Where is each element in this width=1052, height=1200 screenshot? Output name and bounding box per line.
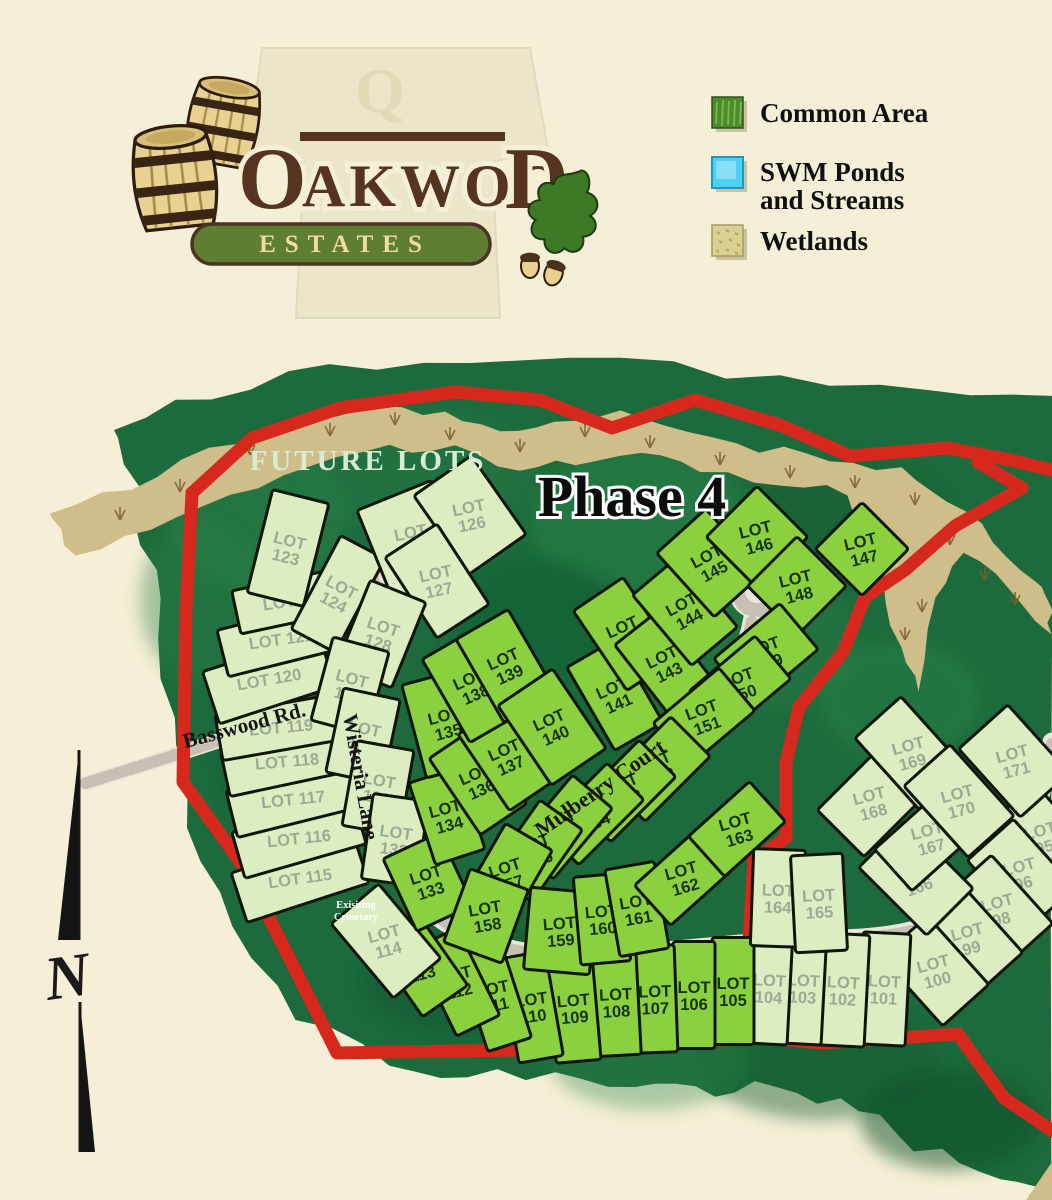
logo: Q O AKWOO D ESTATES [129, 48, 615, 318]
legend: Common Area SWM Ponds and Streams Wetlan… [712, 97, 929, 260]
phase-4-title: Phase 4 [538, 464, 727, 529]
legend-swm-label-line2: and Streams [760, 185, 904, 215]
future-lots-label: FUTURE LOTS [250, 445, 487, 477]
cemetery-label-line2: Cemetary [334, 912, 379, 923]
plat-map: LOT95LOT96LOT98LOT99LOT100LOT101LOT102LO… [0, 0, 1052, 1200]
svg-text:LOT104: LOT104 [752, 971, 787, 1008]
north-arrow: N [39, 750, 96, 1152]
logo-overline [300, 132, 505, 141]
lot-165: LOT165 [790, 853, 847, 953]
svg-text:LOT105: LOT105 [717, 975, 750, 1010]
cemetery-label-line1: Exisiting [336, 900, 376, 911]
svg-text:LOT102: LOT102 [826, 973, 861, 1010]
legend-common-area-label: Common Area [760, 98, 929, 128]
north-arrow-upper-blade [58, 750, 79, 940]
north-label: N [39, 940, 96, 1014]
svg-text:LOT108: LOT108 [599, 985, 634, 1022]
forest-texture-patch [860, 1070, 1040, 1170]
svg-text:LOT107: LOT107 [638, 982, 672, 1018]
svg-text:LOT101: LOT101 [867, 972, 902, 1009]
legend-swm-label-line1: SWM Ponds [760, 157, 905, 187]
lot-105: LOT105 [712, 938, 754, 1045]
legend-wetlands-label: Wetlands [760, 226, 868, 256]
swm-swatch-highlight [716, 161, 736, 179]
svg-text:LOT109: LOT109 [556, 991, 592, 1029]
lot-106: LOT106 [673, 942, 715, 1049]
north-arrow-lower-blade [80, 1002, 95, 1152]
svg-text:LOT164: LOT164 [761, 881, 795, 917]
logo-letter-o: O [238, 131, 306, 228]
estates-label: ESTATES [259, 231, 431, 258]
svg-text:LOT165: LOT165 [802, 886, 837, 923]
svg-text:LOT106: LOT106 [678, 979, 711, 1014]
svg-text:LOT159: LOT159 [542, 914, 578, 952]
keystone-letter: Q [355, 55, 405, 126]
plat-map-canvas: LOT95LOT96LOT98LOT99LOT100LOT101LOT102LO… [0, 0, 1052, 1200]
